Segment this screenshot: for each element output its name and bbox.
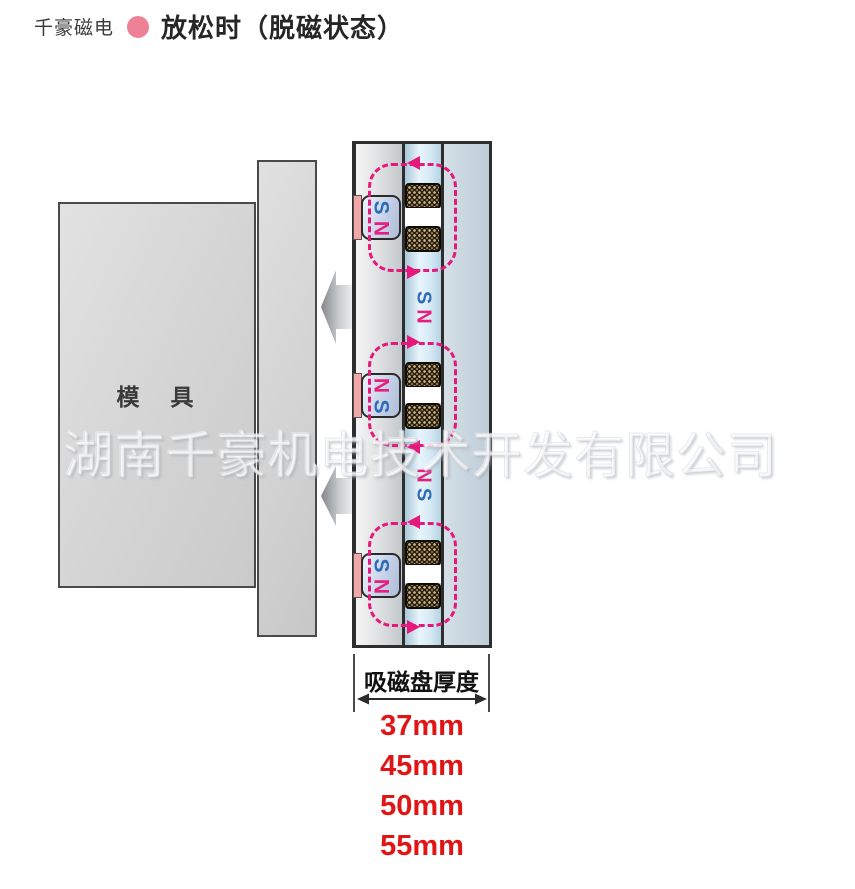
mold-block: 模 具 — [58, 202, 256, 588]
thickness-values: 37mm 45mm 50mm 55mm — [350, 706, 494, 866]
flux-arrow-icon — [407, 335, 420, 349]
flux-arrow-icon — [407, 265, 420, 279]
flux-arrow-icon — [407, 440, 420, 454]
page: 千豪磁电 放松时（脱磁状态） 模 具 — [0, 0, 855, 889]
thickness-value: 50mm — [350, 786, 494, 826]
pole-label-bottom: S — [414, 484, 433, 506]
flux-arrow-icon — [407, 156, 420, 170]
brand-label: 千豪磁电 — [34, 13, 114, 40]
mold-label: 模 具 — [117, 378, 198, 412]
flux-loop — [368, 342, 457, 447]
pole-label-bottom: N — [414, 306, 433, 328]
core-pole-label: N S — [405, 467, 441, 503]
thickness-value: 55mm — [350, 826, 494, 866]
thickness-value: 37mm — [350, 706, 494, 746]
flux-arrow-icon — [407, 515, 420, 529]
thickness-value: 45mm — [350, 746, 494, 786]
dimension-arrow-icon — [356, 692, 488, 706]
bullet-icon — [127, 16, 149, 38]
flux-loop — [368, 163, 457, 272]
chuck-right-border — [489, 141, 492, 648]
core-pole-label: S N — [405, 289, 441, 325]
chuck-top-border — [352, 141, 492, 144]
page-title: 放松时（脱磁状态） — [161, 8, 404, 45]
adapter-plate — [257, 160, 317, 637]
flux-loop — [368, 522, 457, 627]
flux-arrow-icon — [407, 620, 420, 634]
chuck-bottom-border — [352, 645, 492, 648]
magnetic-chuck-body: S N S N N S N S — [352, 141, 492, 648]
